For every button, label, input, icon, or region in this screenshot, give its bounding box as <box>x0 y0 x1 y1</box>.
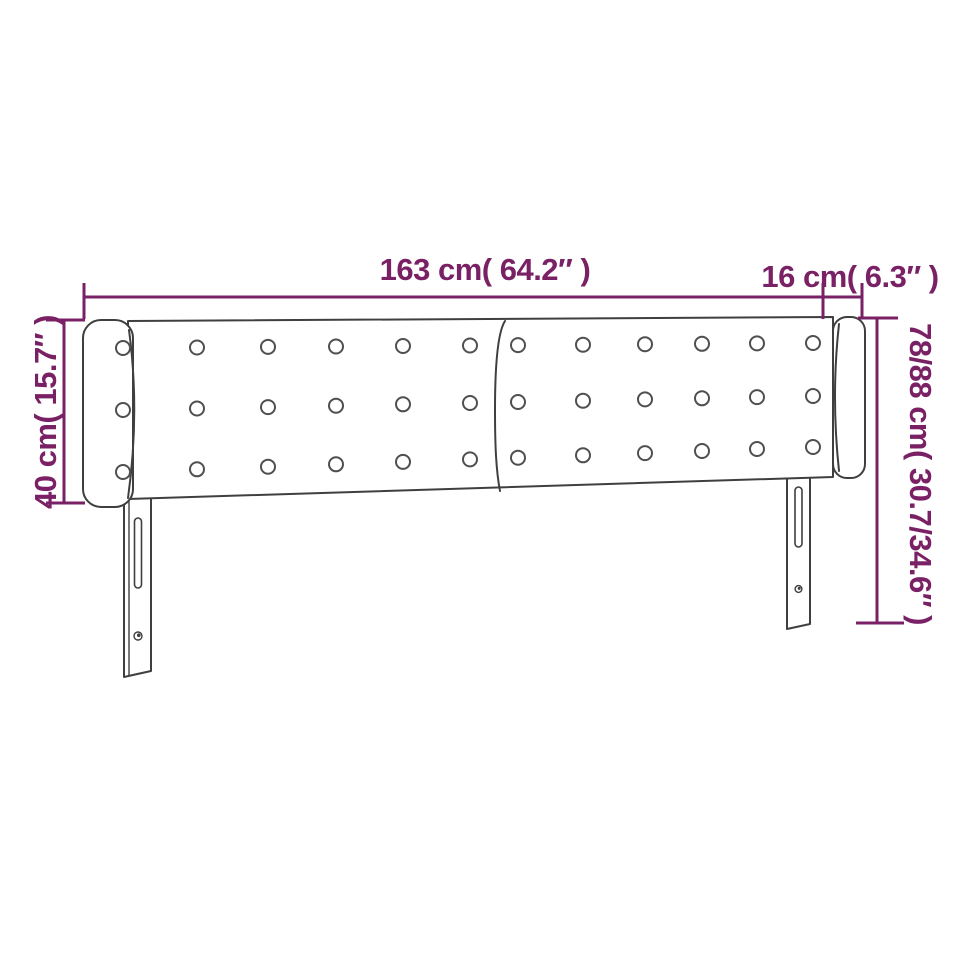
tufting-button <box>750 336 764 350</box>
tufting-button <box>329 399 343 413</box>
tufting-button <box>576 448 590 462</box>
tufting-button <box>396 397 410 411</box>
headboard-drawing <box>83 317 865 677</box>
headboard-panel <box>128 317 833 499</box>
tufting-button <box>576 394 590 408</box>
tufting-button <box>463 396 477 410</box>
tufting-button <box>116 403 130 417</box>
right-leg-hole-center <box>798 587 801 590</box>
tufting-button <box>511 451 525 465</box>
right-leg-outline <box>787 460 810 629</box>
width-dimension-line <box>84 283 862 319</box>
tufting-button <box>116 341 130 355</box>
tufting-button <box>261 400 275 414</box>
left-leg-hole-center <box>137 633 141 637</box>
product-dimension-diagram: 163 cm( 64.2″ ) 16 cm( 6.3″ ) 40 cm( 15.… <box>0 0 955 955</box>
tufting-button <box>750 390 764 404</box>
total-height-dimension-label: 78/88 cm( 30.7/34.6″ ) <box>903 323 938 625</box>
tufting-button <box>750 442 764 456</box>
ear-height-dimension-label: 40 cm( 15.7″ ) <box>28 315 63 509</box>
tufting-button <box>638 392 652 406</box>
tufting-button <box>806 440 820 454</box>
diagram-svg: 163 cm( 64.2″ ) 16 cm( 6.3″ ) 40 cm( 15.… <box>0 0 955 955</box>
right-ear <box>833 317 865 478</box>
tufting-button <box>329 457 343 471</box>
tufting-button <box>638 337 652 351</box>
tufting-button <box>190 402 204 416</box>
tufting-button <box>576 338 590 352</box>
tufting-button <box>695 391 709 405</box>
right-leg <box>787 460 810 629</box>
tufting-button <box>396 455 410 469</box>
tufting-button <box>695 444 709 458</box>
tufting-button <box>261 460 275 474</box>
tufting-button <box>261 340 275 354</box>
tufting-button <box>511 338 525 352</box>
tufting-button <box>638 446 652 460</box>
ear-width-dimension-label: 16 cm( 6.3″ ) <box>761 259 938 294</box>
width-dimension-label: 163 cm( 64.2″ ) <box>380 252 591 287</box>
tufting-button <box>329 340 343 354</box>
tufting-button <box>116 465 130 479</box>
tufting-button <box>806 336 820 350</box>
tufting-button <box>806 389 820 403</box>
tufting-button <box>396 339 410 353</box>
tufting-button <box>190 341 204 355</box>
tufting-button <box>463 339 477 353</box>
tufting-button <box>190 462 204 476</box>
tufting-button <box>695 337 709 351</box>
tufting-button <box>463 452 477 466</box>
tufting-button <box>511 395 525 409</box>
